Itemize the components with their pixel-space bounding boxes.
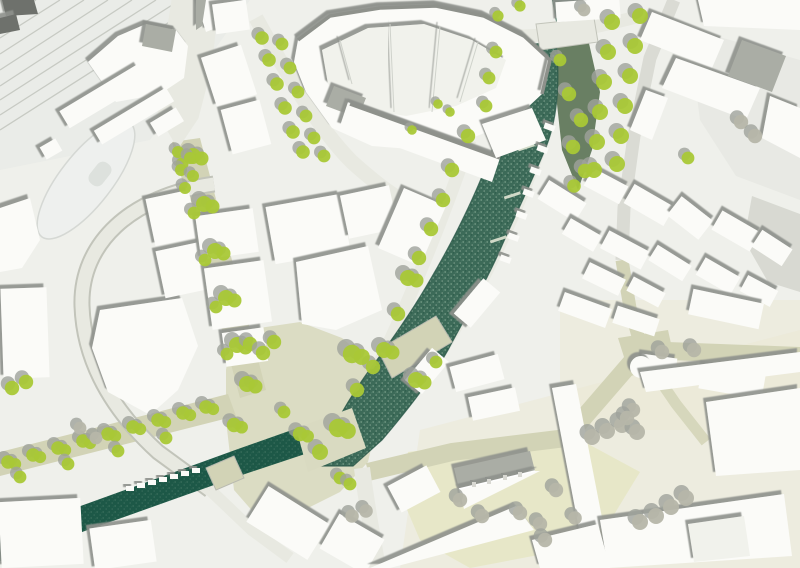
masterplan-canvas [0, 0, 800, 568]
courtyard [688, 516, 750, 562]
masterplan-stage [0, 0, 800, 568]
